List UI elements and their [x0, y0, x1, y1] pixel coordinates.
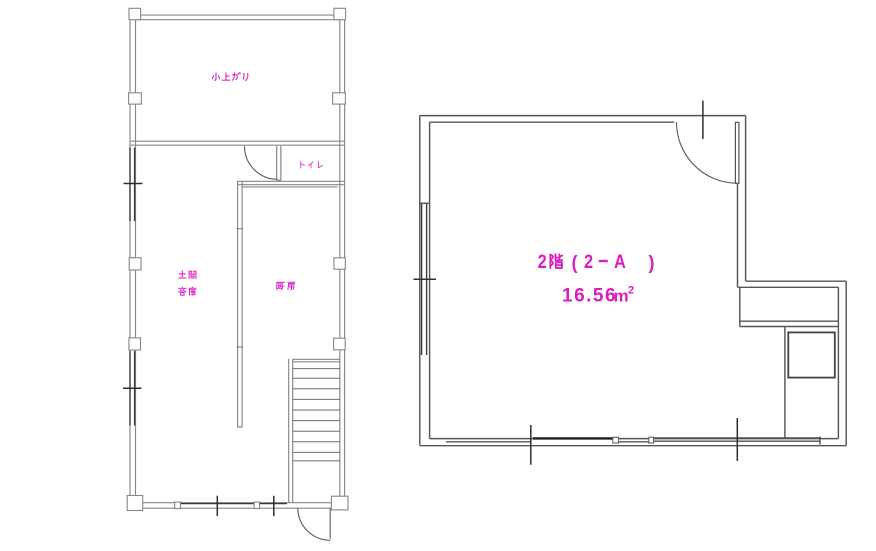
svg-text:A: A	[614, 251, 626, 273]
svg-text:m: m	[614, 286, 629, 305]
svg-text:2: 2	[538, 251, 547, 273]
svg-text:16.56: 16.56	[562, 285, 617, 306]
svg-text:): )	[649, 252, 655, 274]
svg-text:2: 2	[628, 285, 634, 297]
svg-text:(: (	[572, 252, 579, 274]
svg-text:2: 2	[584, 251, 593, 273]
